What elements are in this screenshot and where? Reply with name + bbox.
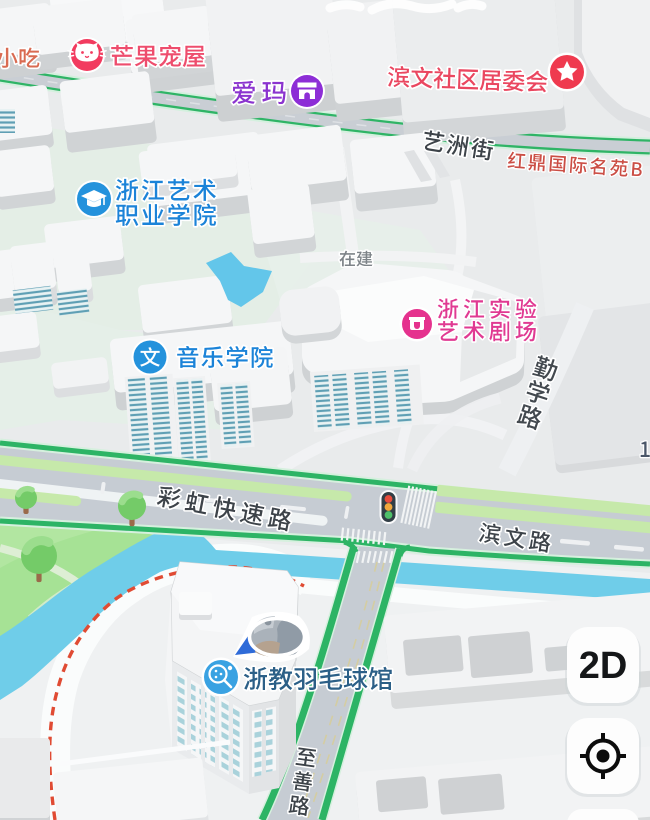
svg-text:2D: 2D xyxy=(579,645,628,687)
